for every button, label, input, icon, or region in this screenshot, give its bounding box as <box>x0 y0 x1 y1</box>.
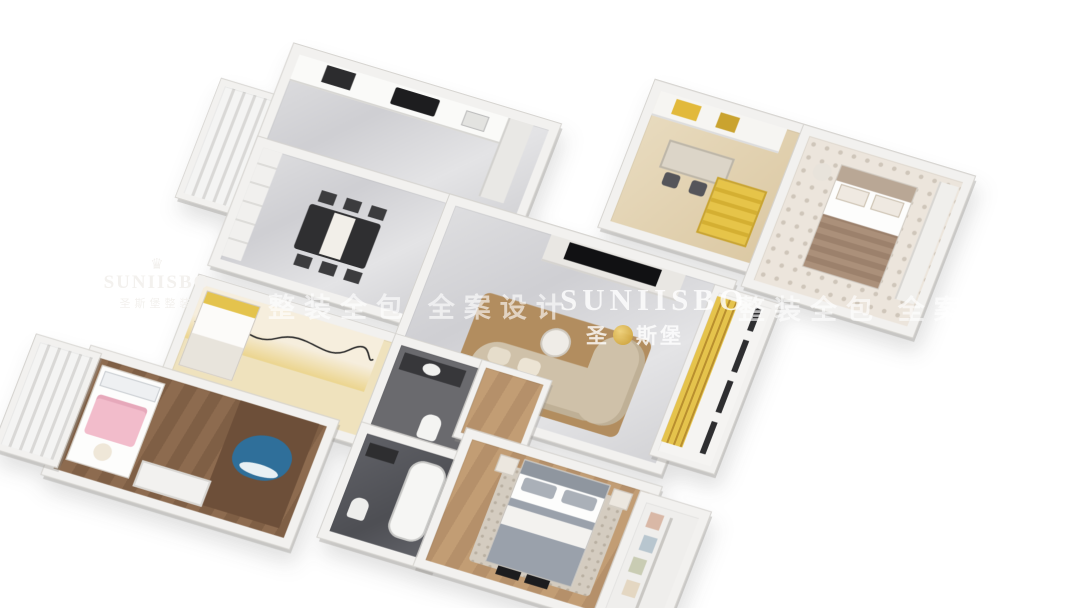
kids-mural-wall <box>200 400 319 528</box>
powder-vanity <box>399 352 467 387</box>
powder-basin <box>421 361 443 377</box>
bedroom-ne-bed <box>802 164 918 290</box>
bath-toilet <box>346 496 371 522</box>
closet-clothes-3 <box>628 556 647 575</box>
closet-clothes-1 <box>645 512 664 531</box>
bedroom-ne-nightstand <box>810 161 834 183</box>
powder-toilet <box>415 412 444 442</box>
dining-chair-3 <box>368 205 388 221</box>
dining-chair-1 <box>318 190 338 206</box>
study-chair-1 <box>661 171 681 189</box>
bedroom-west-bed <box>178 290 261 381</box>
dining-chair-5 <box>318 261 338 277</box>
dining-chair-6 <box>343 268 363 284</box>
bedroom-west-blanket <box>180 333 244 380</box>
whale-mural <box>226 428 298 488</box>
closet-clothes-2 <box>639 535 658 554</box>
bedroom-ne-blanket <box>803 214 898 289</box>
dining-chair-2 <box>343 198 363 214</box>
kids-desk-cabinet <box>132 460 211 507</box>
dining-chair-4 <box>293 253 313 269</box>
kids-pink-blanket <box>83 394 148 448</box>
study-chair-2 <box>688 180 708 198</box>
dining-table-runner <box>319 213 356 260</box>
kids-teddy-bear <box>91 441 115 463</box>
closet-clothes-4 <box>621 579 640 598</box>
bath-vanity <box>365 443 399 465</box>
floorplan-render: ♛ SUNIISBO 圣斯堡整装 整装全包 全案设计 SUNIISBO 圣 斯堡… <box>0 0 1080 608</box>
